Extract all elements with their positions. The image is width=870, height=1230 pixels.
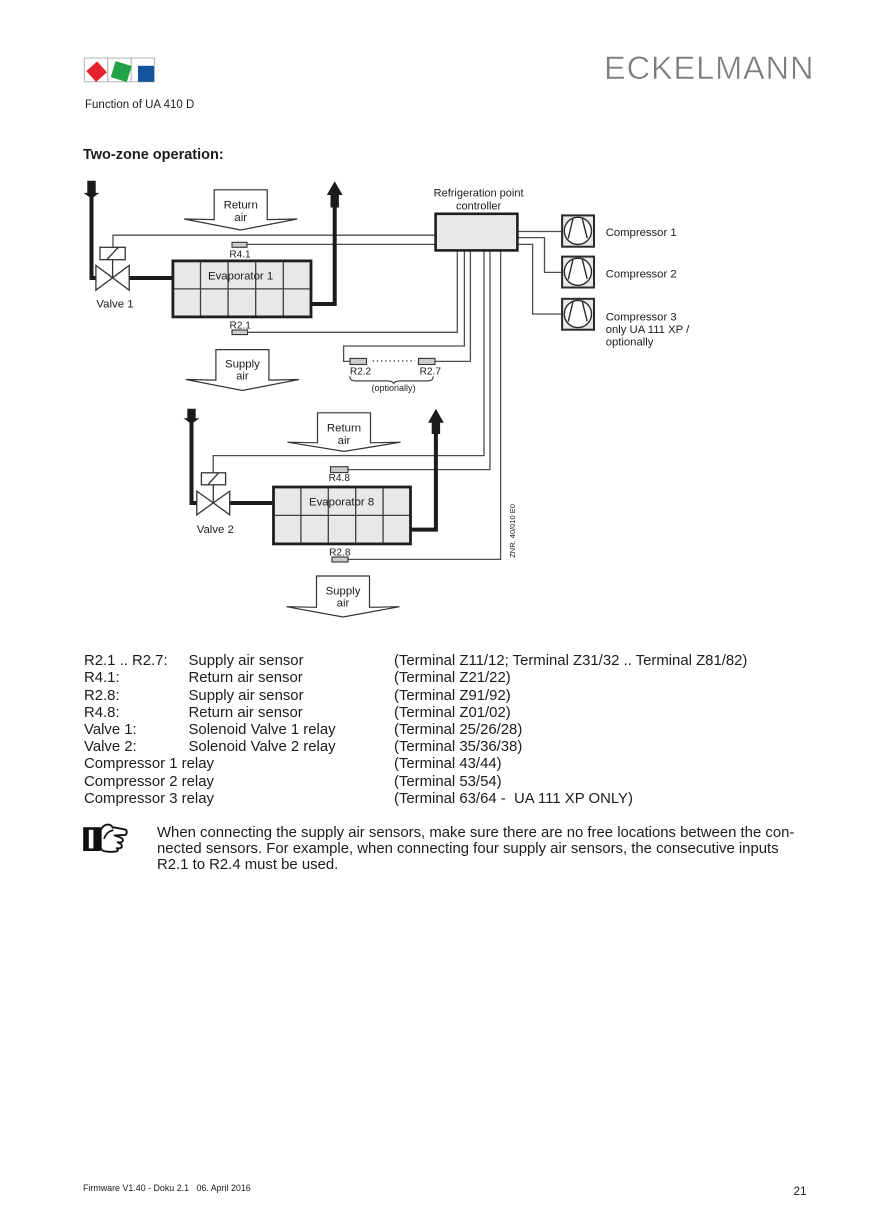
svg-text:Compressor 1: Compressor 1 xyxy=(606,227,677,239)
svg-text:R4.8: R4.8 xyxy=(329,473,351,484)
svg-text:R2.1: R2.1 xyxy=(230,320,252,331)
svg-text:(optionally): (optionally) xyxy=(371,383,415,393)
svg-text:Valve 2: Valve 2 xyxy=(197,524,234,536)
svg-text:R2.7: R2.7 xyxy=(420,366,442,377)
svg-text:R2.2: R2.2 xyxy=(350,366,372,377)
svg-text:air: air xyxy=(337,598,350,610)
svg-text:Evaporator 1: Evaporator 1 xyxy=(208,271,273,283)
svg-text:Evaporator 8: Evaporator 8 xyxy=(309,496,374,508)
svg-text:Compressor 2: Compressor 2 xyxy=(606,268,677,280)
svg-text:R4.1: R4.1 xyxy=(229,250,251,261)
svg-text:Compressor 3: Compressor 3 xyxy=(606,311,677,323)
svg-text:optionally: optionally xyxy=(606,337,654,349)
svg-text:Refrigeration point: Refrigeration point xyxy=(434,187,524,199)
svg-text:Return: Return xyxy=(224,200,258,212)
svg-text:R2.8: R2.8 xyxy=(329,548,351,559)
svg-text:Return: Return xyxy=(327,422,361,434)
svg-text:air: air xyxy=(338,435,351,447)
svg-text:Supply: Supply xyxy=(225,359,260,371)
svg-text:air: air xyxy=(236,371,249,383)
svg-text:ZNR. 40/010 E0: ZNR. 40/010 E0 xyxy=(508,504,517,558)
svg-text:only UA 111 XP /: only UA 111 XP / xyxy=(606,324,690,336)
svg-text:Supply: Supply xyxy=(326,586,361,598)
svg-text:Valve 1: Valve 1 xyxy=(96,298,133,310)
svg-text:air: air xyxy=(234,212,247,224)
svg-text:controller: controller xyxy=(456,200,502,212)
